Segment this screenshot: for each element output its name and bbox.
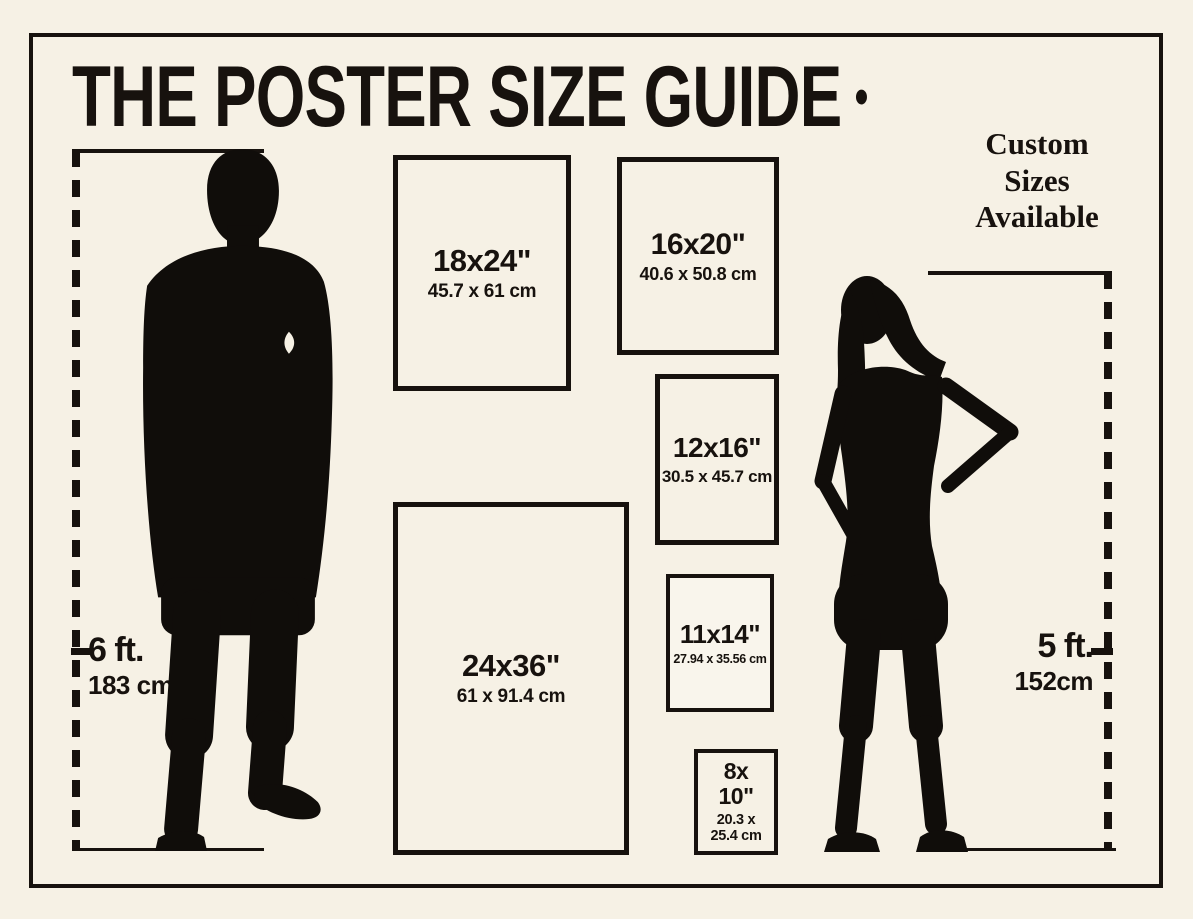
poster-size-label: 18x24" — [433, 244, 531, 278]
poster-box-16x20: 16x20" 40.6 x 50.8 cm — [617, 157, 779, 355]
woman-height-dashed-line — [1104, 272, 1112, 850]
poster-box-12x16: 12x16" 30.5 x 45.7 cm — [655, 374, 779, 545]
custom-note-line: Sizes — [948, 163, 1126, 200]
custom-note-line: Available — [948, 199, 1126, 236]
poster-metric-label: 40.6 x 50.8 cm — [640, 264, 757, 285]
title-dot: • — [855, 54, 868, 140]
man-torso — [143, 246, 333, 598]
woman-silhouette — [810, 274, 1022, 854]
poster-size-label: 24x36" — [462, 649, 560, 683]
woman-right-foot — [916, 830, 968, 852]
poster-box-11x14: 11x14" 27.94 x 35.56 cm — [666, 574, 774, 712]
poster-size-guide: THE POSTER SIZE GUIDE • Custom Sizes Ava… — [0, 0, 1193, 919]
poster-size-label: 12x16" — [673, 433, 761, 464]
poster-box-18x24: 18x24" 45.7 x 61 cm — [393, 155, 571, 391]
man-left-foot — [155, 831, 207, 851]
poster-metric-label: 30.5 x 45.7 cm — [662, 467, 772, 487]
woman-left-foot — [824, 832, 880, 852]
man-silhouette — [136, 146, 338, 853]
woman-height-tick — [1091, 648, 1113, 655]
man-right-foot — [254, 784, 321, 819]
page-title: THE POSTER SIZE GUIDE • — [72, 54, 868, 140]
poster-box-8x10: 8x 10" 20.3 x 25.4 cm — [694, 749, 778, 855]
man-height-dashed-line — [72, 150, 80, 850]
custom-note-line: Custom — [948, 126, 1126, 163]
poster-metric-label: 27.94 x 35.56 cm — [673, 652, 766, 666]
poster-metric-label: 20.3 x 25.4 cm — [706, 812, 766, 845]
custom-sizes-note: Custom Sizes Available — [948, 126, 1126, 236]
page-title-text: THE POSTER SIZE GUIDE — [72, 54, 841, 140]
poster-size-label: 11x14" — [680, 620, 760, 649]
poster-box-24x36: 24x36" 61 x 91.4 cm — [393, 502, 629, 855]
poster-size-label: 16x20" — [651, 228, 746, 261]
poster-metric-label: 61 x 91.4 cm — [457, 686, 565, 708]
poster-metric-label: 45.7 x 61 cm — [428, 281, 536, 303]
poster-size-label: 8x 10" — [715, 759, 757, 810]
